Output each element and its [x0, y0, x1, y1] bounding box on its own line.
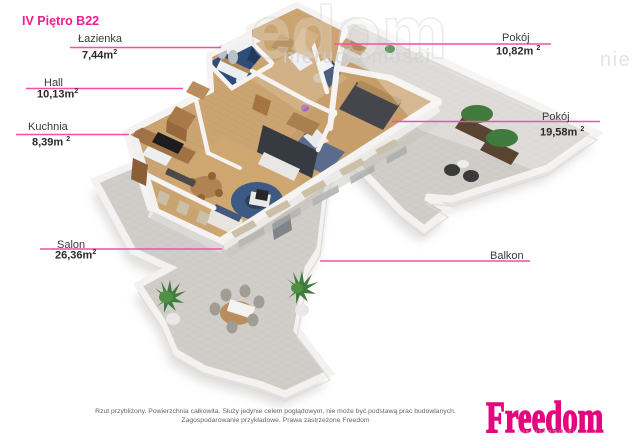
svg-text:nie: nie	[600, 49, 631, 71]
svg-text:nieruchomości: nieruchomości	[283, 46, 431, 68]
